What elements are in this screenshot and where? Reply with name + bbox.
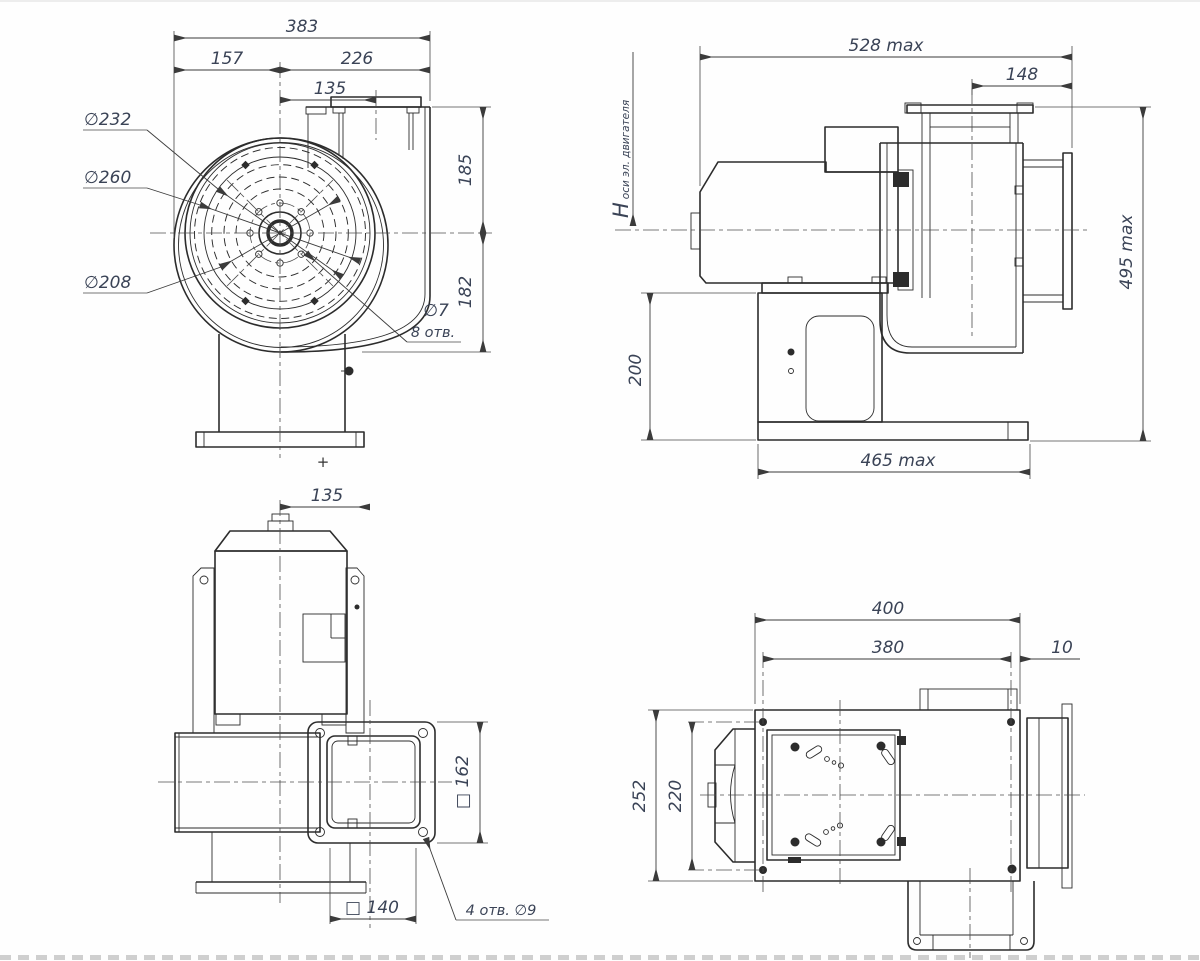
technical-drawing-canvas: 383 157 226 135 185 182 ∅232 ∅260 ∅208	[0, 0, 1200, 961]
top-shaft-collar	[268, 521, 293, 531]
side-dim-base-length: 465 max	[861, 451, 937, 471]
front-centerlines	[150, 62, 492, 458]
bottom-dimensions: 400 380 10 252 220	[630, 599, 1080, 881]
bottom-outlet-far-edge	[920, 689, 1017, 710]
bottom-slide-slots	[791, 742, 896, 848]
side-view: Hоси эл. двигателя 528 max 148 495 max 2…	[609, 36, 1151, 479]
side-access-opening	[806, 316, 874, 421]
side-centerlines	[615, 88, 1090, 340]
front-dim-outlet-offset: 135	[314, 79, 346, 99]
top-dim-outlet-square: □ 162	[453, 755, 473, 809]
top-label-flange-holes: 4 отв. ∅9	[466, 903, 537, 919]
top-dim-flange-square: □ 140	[345, 898, 399, 918]
front-dim-width-total: 383	[286, 17, 318, 37]
bottom-inlet-and-outlet	[908, 689, 1072, 950]
side-dim-length-max: 528 max	[849, 36, 925, 56]
side-shaft-cap	[691, 213, 700, 249]
scan-artifact-top	[0, 0, 1200, 2]
front-dim-height-upper: 185	[456, 154, 476, 186]
side-dim-pedestal-height: 200	[626, 354, 646, 386]
top-fan-cowl	[215, 531, 347, 551]
bottom-dim-holes-span-depth: 220	[666, 780, 686, 812]
side-base-plate	[758, 422, 1028, 440]
top-bracket-right	[346, 568, 364, 733]
front-label-d260: ∅260	[84, 168, 131, 188]
front-view: 383 157 226 135 185 182 ∅232 ∅260 ∅208	[83, 17, 492, 471]
bottom-base-plate	[755, 710, 1020, 881]
top-motor	[193, 514, 364, 733]
side-dim-inlet-depth: 148	[1006, 65, 1039, 85]
bottom-dim-base-width: 400	[872, 599, 904, 619]
top-view: 135 □ 162 □ 140 4 отв. ∅9	[158, 486, 549, 928]
bottom-centerlines	[688, 652, 1085, 958]
front-label-d232: ∅232	[84, 110, 131, 130]
bottom-dim-base-depth: 252	[630, 780, 650, 812]
top-casing	[175, 722, 435, 893]
front-label-holes-count: 8 отв.	[411, 325, 455, 341]
front-center-mark: +	[317, 453, 330, 471]
side-outlet-flange	[907, 105, 1033, 113]
bottom-dim-hole-edge: 10	[1051, 638, 1073, 658]
bottom-motor-end	[708, 729, 755, 862]
front-label-holes-dia: ∅7	[423, 301, 449, 321]
front-drain-bolt	[345, 367, 354, 376]
top-motor-body	[215, 551, 347, 714]
top-bracket-left	[193, 568, 214, 733]
side-inlet-flange	[1063, 153, 1072, 309]
side-label-axis-height: Hоси эл. двигателя	[609, 100, 633, 218]
side-motor-plate	[762, 283, 888, 293]
front-casing	[174, 97, 430, 352]
bottom-outlet-flange	[908, 881, 1034, 950]
drawing-sheet: 383 157 226 135 185 182 ∅232 ∅260 ∅208	[0, 0, 1200, 961]
side-dim-height-max: 495 max	[1117, 214, 1137, 290]
front-dim-width-right: 226	[341, 49, 374, 69]
front-dim-height-lower: 182	[456, 276, 476, 308]
top-dim-outlet-offset: 135	[311, 486, 343, 506]
front-label-d208: ∅208	[84, 273, 131, 293]
bottom-view: 400 380 10 252 220	[630, 599, 1085, 958]
front-dim-width-left: 157	[211, 49, 244, 69]
side-casing	[880, 103, 1072, 353]
bottom-dim-holes-span: 380	[872, 638, 904, 658]
side-pedestal	[758, 293, 1028, 440]
bottom-inlet-flange	[1062, 704, 1072, 888]
